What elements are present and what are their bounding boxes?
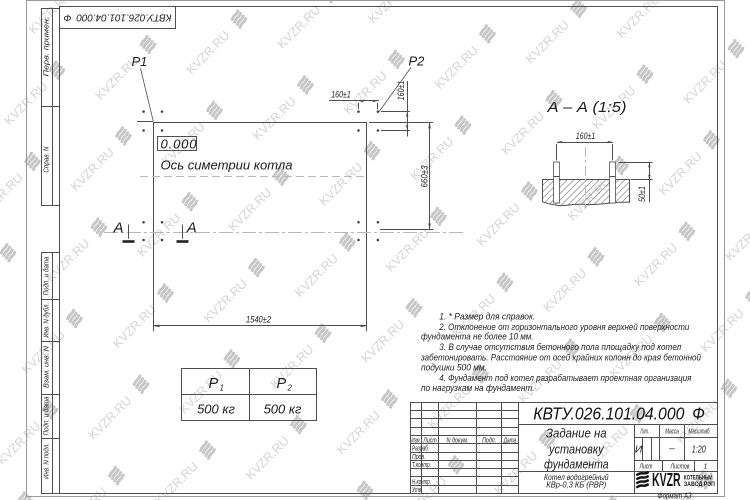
- svg-text:KVZR: KVZR: [652, 470, 681, 491]
- svg-text:500 кг: 500 кг: [197, 402, 235, 417]
- svg-text:Лист: Лист: [639, 463, 653, 470]
- svg-text:Подп. и дата: Подп. и дата: [42, 257, 51, 296]
- svg-text:по нагрузкам на фундамент.: по нагрузкам на фундамент.: [421, 383, 535, 393]
- svg-text:Ось симетрии котла: Ось симетрии котла: [161, 158, 293, 173]
- svg-text:1: 1: [704, 463, 708, 470]
- svg-text:Утв.: Утв.: [411, 485, 422, 494]
- svg-text:Формат А3: Формат А3: [658, 491, 692, 500]
- svg-text:Перв. примен.: Перв. примен.: [42, 17, 51, 77]
- svg-text:фундамента не более 10 мм.: фундамента не более 10 мм.: [421, 332, 534, 342]
- svg-text:500 кг: 500 кг: [264, 402, 302, 417]
- svg-text:Р: Р: [209, 376, 219, 392]
- svg-text:1540±2: 1540±2: [246, 315, 272, 326]
- svg-text:160±1: 160±1: [331, 90, 351, 101]
- svg-text:ЗАВОД РЭП: ЗАВОД РЭП: [684, 481, 715, 488]
- svg-text:Подп. и дата: Подп. и дата: [42, 397, 51, 436]
- svg-text:3. В случае отсутствия бетонно: 3. В случае отсутствия бетонного пола пл…: [439, 342, 681, 352]
- svg-text:2: 2: [287, 384, 293, 393]
- svg-text:А – А (1:5): А – А (1:5): [546, 99, 626, 116]
- svg-text:Инв. N дубл.: Инв. N дубл.: [42, 303, 51, 338]
- svg-text:Р2: Р2: [409, 54, 426, 69]
- svg-text:1. * Размер для справок.: 1. * Размер для справок.: [439, 311, 535, 321]
- svg-text:А: А: [113, 220, 124, 237]
- svg-text:фундамента: фундамента: [544, 457, 609, 472]
- svg-text:И: И: [635, 443, 643, 455]
- svg-text:КВр-0,3 КБ (РВР): КВр-0,3 КБ (РВР): [546, 480, 606, 490]
- svg-text:Инв. N подл.: Инв. N подл.: [42, 443, 51, 479]
- svg-text:Р1: Р1: [132, 54, 148, 69]
- svg-text:Взам. инв. N: Взам. инв. N: [42, 345, 51, 388]
- svg-text:50±1: 50±1: [637, 186, 647, 202]
- svg-text:1:20: 1:20: [692, 443, 706, 455]
- svg-text:4. Фундамент под котел разраба: 4. Фундамент под котел разрабатывает про…: [439, 373, 691, 383]
- svg-text:Лит.: Лит.: [640, 429, 649, 436]
- svg-text:1: 1: [220, 384, 224, 393]
- svg-text:Справ. N: Справ. N: [42, 146, 51, 172]
- svg-text:N докум.: N докум.: [447, 436, 469, 444]
- svg-text:Подп.: Подп.: [482, 436, 496, 444]
- svg-text:КВТУ.026.101.04.000 Ф: КВТУ.026.101.04.000 Ф: [533, 404, 705, 424]
- svg-text:Масса: Масса: [665, 429, 679, 436]
- svg-text:установку: установку: [548, 441, 605, 456]
- svg-text:Дата: Дата: [503, 437, 516, 444]
- svg-text:–: –: [668, 443, 675, 455]
- svg-text:160±1: 160±1: [576, 131, 596, 141]
- svg-text:Т.контр.: Т.контр.: [412, 460, 431, 469]
- svg-text:подушки 500 мм.: подушки 500 мм.: [421, 363, 487, 373]
- svg-text:0.000: 0.000: [161, 136, 198, 151]
- svg-text:660±3: 660±3: [419, 165, 430, 188]
- svg-text:Масштаб: Масштаб: [689, 428, 711, 436]
- svg-text:160±1: 160±1: [396, 81, 407, 101]
- svg-text:забетонировать. Расстояние от: забетонировать. Расстояние от осей крайн…: [420, 353, 701, 363]
- svg-text:Р: Р: [277, 376, 287, 392]
- svg-text:А: А: [186, 220, 197, 237]
- svg-text:Задание на: Задание на: [546, 426, 607, 441]
- svg-text:КВТУ.026.101.04.000 Ф: КВТУ.026.101.04.000 Ф: [64, 12, 172, 24]
